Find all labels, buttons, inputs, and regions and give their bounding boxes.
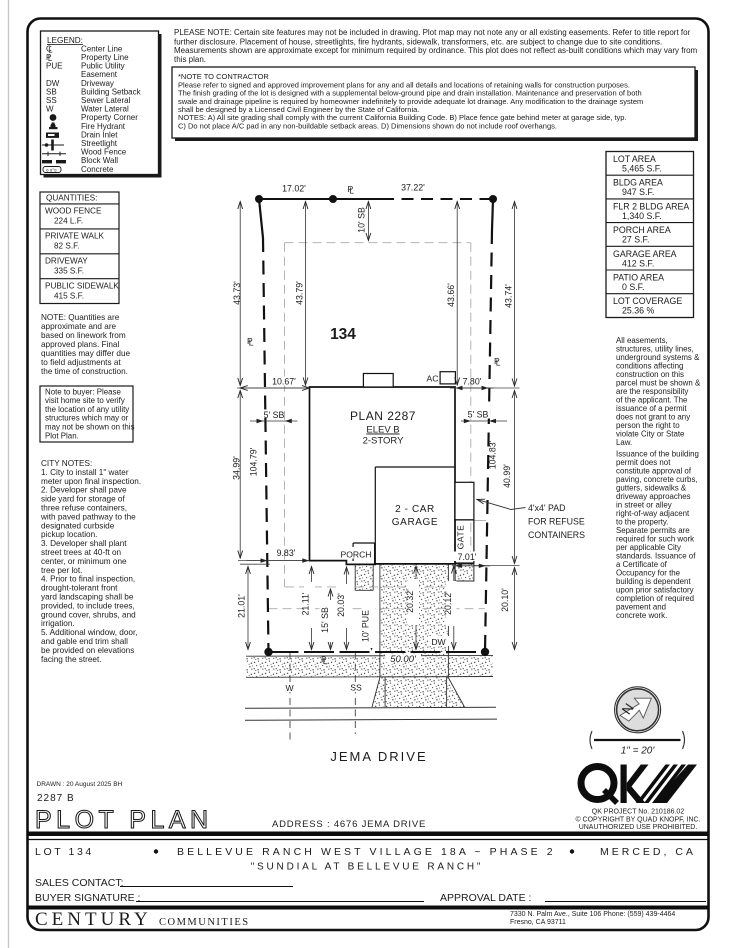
svg-text:PL: PL: [494, 356, 501, 368]
svg-text:7.80': 7.80': [463, 377, 482, 387]
svg-text:PORCH: PORCH: [340, 550, 371, 560]
svg-text:PLEASE NOTE: Certain site fea: PLEASE NOTE: Certain site features may n…: [174, 28, 691, 37]
svg-text:20.03': 20.03': [336, 593, 346, 617]
svg-text:QK PROJECT No. 210186.02: QK PROJECT No. 210186.02: [592, 809, 685, 816]
svg-text:structures which may or: structures which may or: [45, 414, 129, 423]
svg-text:PUBLIC SIDEWALK: PUBLIC SIDEWALK: [45, 281, 119, 290]
svg-text:PL: PL: [348, 184, 355, 196]
svg-text:APPROVAL DATE :: APPROVAL DATE :: [440, 892, 531, 904]
svg-text:4. Prior to final inspection,: 4. Prior to final inspection,: [41, 575, 135, 584]
svg-text:BUYER SIGNATURE :: BUYER SIGNATURE :: [35, 892, 140, 904]
svg-text:7330 N. Palm Ave., Suite 106: 7330 N. Palm Ave., Suite 106 Phone: (559…: [510, 911, 675, 918]
svg-text:CITY NOTES:: CITY NOTES:: [41, 459, 92, 468]
svg-text:designated curbside: designated curbside: [41, 521, 115, 530]
svg-text:50.00': 50.00': [390, 654, 417, 665]
svg-text:GATE: GATE: [456, 525, 466, 550]
svg-text:GARAGE AREA: GARAGE AREA: [613, 249, 677, 259]
svg-text:LOT AREA: LOT AREA: [613, 154, 656, 164]
svg-text:meter upon final inspection.: meter upon final inspection.: [41, 477, 141, 486]
svg-text:PL: PL: [247, 336, 254, 348]
svg-text:UNAUTHORIZED USE PROHIBITED.: UNAUTHORIZED USE PROHIBITED.: [579, 824, 698, 831]
svg-text:SALES CONTACT:: SALES CONTACT:: [35, 877, 124, 889]
svg-text:PL: PL: [321, 655, 328, 667]
svg-text:concrete work.: concrete work.: [616, 611, 667, 620]
svg-text:CONTAINERS: CONTAINERS: [528, 530, 585, 540]
svg-text:to field adjustments at: to field adjustments at: [41, 358, 121, 367]
svg-text:947 S.F.: 947 S.F.: [622, 187, 654, 197]
svg-text:Note to buyer: Please: Note to buyer: Please: [45, 387, 121, 396]
svg-text:LOT COVERAGE: LOT COVERAGE: [613, 296, 682, 306]
svg-text:1. City to install 1" water: 1. City to install 1" water: [41, 468, 129, 477]
svg-text:82 S.F.: 82 S.F.: [54, 242, 80, 251]
svg-text:ground cover, shrubs, and: ground cover, shrubs, and: [41, 610, 136, 619]
svg-text:21.01': 21.01': [237, 594, 247, 618]
svg-text:5,465 S.F.: 5,465 S.F.: [622, 164, 662, 174]
svg-text:o o°o: o o°o: [46, 167, 57, 172]
svg-text:7.01': 7.01': [458, 552, 477, 562]
svg-text:10.67': 10.67': [272, 377, 296, 387]
svg-text:43.74': 43.74': [503, 284, 513, 308]
svg-text:the time of construction.: the time of construction.: [41, 367, 128, 376]
svg-text:2-STORY: 2-STORY: [363, 436, 404, 447]
svg-text:224 L.F.: 224 L.F.: [54, 217, 83, 226]
svg-text:approximate and are: approximate and are: [41, 322, 117, 331]
svg-text:LEGEND:: LEGEND:: [47, 36, 83, 45]
svg-text:side yard for storage of: side yard for storage of: [41, 495, 125, 504]
svg-text:9.83': 9.83': [277, 548, 296, 558]
svg-text:5' SB: 5' SB: [264, 410, 285, 420]
svg-text:DRIVEWAY: DRIVEWAY: [45, 256, 88, 265]
svg-text:ELEV B: ELEV B: [366, 425, 399, 436]
svg-text:DW: DW: [431, 637, 446, 647]
svg-text:may not be shown on this: may not be shown on this: [45, 423, 135, 432]
svg-text:17.02': 17.02': [282, 184, 306, 194]
svg-text:25.36 %: 25.36 %: [622, 306, 654, 316]
svg-text:1" = 20': 1" = 20': [621, 746, 656, 757]
svg-text:1,340 S.F.: 1,340 S.F.: [622, 211, 662, 221]
svg-text:2. Developer shall pave: 2. Developer shall pave: [41, 486, 127, 495]
svg-text:5' SB: 5' SB: [468, 410, 489, 420]
svg-text:PLAN 2287: PLAN 2287: [350, 409, 416, 423]
svg-text:3. Developer shall plant: 3. Developer shall plant: [41, 539, 127, 548]
svg-text:irrigation.: irrigation.: [41, 619, 75, 628]
svg-text:BLDG AREA: BLDG AREA: [613, 178, 663, 188]
svg-text:approved plans. Final: approved plans. Final: [41, 340, 119, 349]
svg-text:27 S.F.: 27 S.F.: [622, 235, 649, 245]
svg-text:4'x4' PAD: 4'x4' PAD: [528, 503, 565, 513]
svg-text:NOTE: Quantities are: NOTE: Quantities are: [41, 313, 120, 322]
svg-text:20.12': 20.12': [443, 591, 453, 615]
svg-text:412 S.F.: 412 S.F.: [622, 258, 654, 268]
svg-text:further disclosure. Placement: further disclosure. Placement of house, …: [174, 37, 662, 46]
svg-text:ADDRESS : 4676 JEMA DRIVE: ADDRESS : 4676 JEMA DRIVE: [272, 819, 426, 830]
svg-text:Law.: Law.: [616, 438, 632, 447]
svg-text:facing the street.: facing the street.: [41, 655, 102, 664]
svg-text:FOR REFUSE: FOR REFUSE: [528, 517, 585, 527]
svg-text:this plan.: this plan.: [174, 55, 206, 64]
svg-text:be provided on elevations: be provided on elevations: [41, 646, 134, 655]
svg-text:335 S.F.: 335 S.F.: [54, 266, 84, 275]
svg-text:W: W: [46, 105, 54, 114]
svg-text:WOOD FENCE: WOOD FENCE: [45, 207, 102, 216]
svg-text:provided, to include trees,: provided, to include trees,: [41, 601, 135, 610]
svg-text:LOT 134: LOT 134: [35, 846, 94, 858]
svg-text:34.99': 34.99': [232, 456, 242, 480]
svg-text:and gable end trim shall: and gable end trim shall: [41, 637, 128, 646]
svg-text:Fresno, CA 93711: Fresno, CA 93711: [510, 919, 566, 926]
svg-text:GARAGE: GARAGE: [392, 517, 438, 528]
svg-text:quantities may differ due: quantities may differ due: [41, 349, 131, 358]
svg-text:DRAWN : 20 August 2025 BH: DRAWN : 20 August 2025 BH: [37, 781, 123, 788]
svg-text:21.11': 21.11': [301, 592, 311, 615]
svg-text:MERCED, CA: MERCED, CA: [600, 846, 696, 858]
svg-text:10' PUE: 10' PUE: [361, 610, 371, 642]
svg-text:W: W: [285, 683, 294, 693]
svg-text:JEMA DRIVE: JEMA DRIVE: [330, 749, 427, 764]
svg-text:© COPYRIGHT BY QUAD KNOPF, INC: © COPYRIGHT BY QUAD KNOPF, INC.: [575, 815, 700, 823]
svg-text:43.79': 43.79': [295, 281, 305, 305]
svg-text:with paved pathway to the: with paved pathway to the: [40, 512, 136, 521]
svg-text:2287 B: 2287 B: [37, 793, 75, 804]
svg-text:based on linework from: based on linework from: [41, 331, 126, 340]
svg-text:415 S.F.: 415 S.F.: [54, 291, 84, 300]
svg-text:three refuse containers,: three refuse containers,: [41, 504, 127, 513]
svg-text:104.83': 104.83': [488, 440, 498, 469]
svg-text:yard landscaping shall be: yard landscaping shall be: [41, 593, 134, 602]
svg-text:20.32': 20.32': [405, 589, 415, 613]
svg-text:PATIO AREA: PATIO AREA: [613, 273, 664, 283]
svg-text:AC: AC: [427, 374, 439, 384]
svg-text:PUE: PUE: [46, 62, 62, 71]
svg-text:10' SB: 10' SB: [357, 207, 367, 233]
svg-text:2 - CAR: 2 - CAR: [395, 504, 435, 515]
svg-text:Concrete: Concrete: [81, 165, 114, 174]
svg-text:Measurements shown are approxi: Measurements shown are approximate excep…: [174, 46, 698, 55]
svg-text:40.99': 40.99': [502, 464, 512, 488]
svg-text:tree per lot.: tree per lot.: [41, 566, 82, 575]
svg-text:center, or minimum one: center, or minimum one: [41, 557, 127, 566]
svg-text:Plot Plan.: Plot Plan.: [45, 431, 79, 440]
svg-text:PLOT PLAN: PLOT PLAN: [35, 806, 213, 834]
svg-text:drought-tolerant front: drought-tolerant front: [41, 584, 118, 593]
svg-text:104.79': 104.79': [249, 447, 259, 476]
svg-text:20.10': 20.10': [500, 588, 510, 612]
svg-text:43.66': 43.66': [446, 283, 456, 307]
svg-text:FLR 2 BLDG AREA: FLR 2 BLDG AREA: [613, 201, 689, 211]
svg-text:C) Do not place A/C pad in any: C) Do not place A/C pad in any non-build…: [178, 121, 557, 130]
svg-text:PRIVATE WALK: PRIVATE WALK: [45, 232, 105, 241]
svg-text:the location of any utility: the location of any utility: [45, 405, 129, 414]
svg-text:QUANTITIES:: QUANTITIES:: [46, 194, 97, 203]
svg-text:pickup location.: pickup location.: [41, 530, 97, 539]
svg-text:visit home site to verify: visit home site to verify: [45, 396, 125, 405]
svg-text:"SUNDIAL AT BELLEVUE RANCH": "SUNDIAL AT BELLEVUE RANCH": [251, 862, 484, 873]
svg-text:SS: SS: [350, 683, 362, 693]
svg-text:0 S.F.: 0 S.F.: [622, 282, 645, 292]
svg-text:15' SB: 15' SB: [320, 607, 330, 633]
svg-text:PORCH AREA: PORCH AREA: [613, 225, 671, 235]
svg-text:CENTURY: CENTURY: [35, 909, 152, 930]
svg-text:37.22': 37.22': [401, 183, 425, 193]
svg-text:43.73': 43.73': [232, 281, 242, 305]
svg-text:COMMUNITIES: COMMUNITIES: [159, 917, 250, 928]
svg-text:5. Additional window, door,: 5. Additional window, door,: [41, 628, 138, 637]
svg-text:street trees at 40-ft on: street trees at 40-ft on: [41, 548, 122, 557]
svg-text:BELLEVUE RANCH WEST VILLAGE 18: BELLEVUE RANCH WEST VILLAGE 18A ~ PHASE …: [177, 846, 556, 858]
svg-text:134: 134: [330, 326, 356, 343]
